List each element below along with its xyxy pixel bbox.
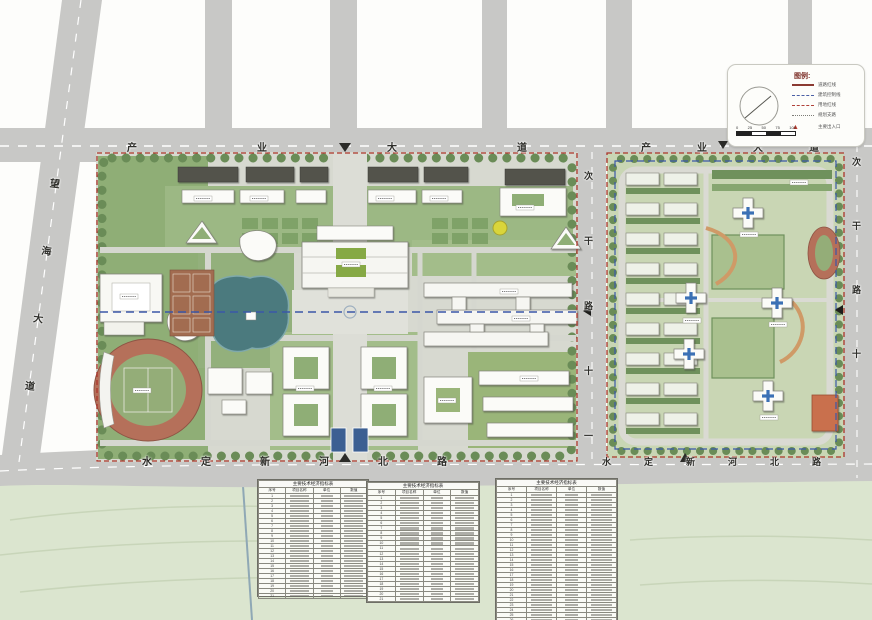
- road-label-industry-avenue-west: 产业大道: [127, 139, 647, 154]
- legend-item-label: 建筑控制线: [818, 92, 841, 98]
- legend-item-label: 用地红线: [818, 102, 836, 108]
- table-title: 主要技术经济指标表: [497, 480, 617, 487]
- legend-line-dotted: [792, 115, 814, 116]
- scale-tick: 50: [762, 125, 766, 130]
- scale-bar: 0 25 50 75 100: [736, 125, 796, 136]
- legend-line-dashed-blue: [792, 95, 814, 96]
- legend-line-solid-red: [792, 84, 814, 86]
- table-row: 21: [259, 594, 368, 599]
- north-compass-icon: [738, 85, 780, 127]
- scale-tick: 25: [748, 125, 752, 130]
- legend-item-label: 主要出入口: [818, 124, 841, 130]
- lake-pavilion: [246, 312, 256, 320]
- circular-garden-feature: [493, 221, 507, 235]
- road-label-shuiding-east: 水定新河北路: [602, 455, 854, 468]
- legend-panel: 图例: 道路红线 建筑控制线 用地红线 规划支路 ▲主要出入口 0 25 50 …: [727, 64, 865, 147]
- east-campus: [607, 153, 844, 458]
- road-label-middle-secondary: 次干路十一: [582, 171, 595, 496]
- technical-indicator-table-3: 主要技术经济指标表序号项目名称单位数值123456789101112131415…: [495, 478, 618, 620]
- legend-item-label: 道路红线: [818, 82, 836, 88]
- scale-tick: 100: [789, 125, 796, 130]
- legend-line-dashed-red: [792, 105, 814, 106]
- master-plan-canvas: 产业大道 产业大道 水定新河北路 水定新河北路 望海大道 次干路十一 次干路十 …: [0, 0, 872, 620]
- scale-tick: 75: [775, 125, 779, 130]
- technical-indicator-table-2: 主要技术经济指标表序号项目名称单位数值123456789101112131415…: [366, 481, 480, 603]
- road-label-shuiding-west: 水定新河北路: [142, 453, 496, 468]
- technical-indicator-table-1: 主要技术经济指标表序号项目名称单位数值123456789101112131415…: [257, 479, 369, 597]
- west-campus: [94, 152, 581, 462]
- scale-tick: 0: [736, 125, 738, 130]
- table-title: 主要技术经济指标表: [259, 481, 368, 488]
- tennis-courts: [170, 270, 214, 336]
- table-title: 主要技术经济指标表: [368, 483, 479, 490]
- legend-item-label: 规划支路: [818, 112, 836, 118]
- legend-title: 图例:: [794, 71, 810, 81]
- road-label-east-secondary: 次干路十: [850, 157, 863, 413]
- table-row: 21: [368, 596, 479, 601]
